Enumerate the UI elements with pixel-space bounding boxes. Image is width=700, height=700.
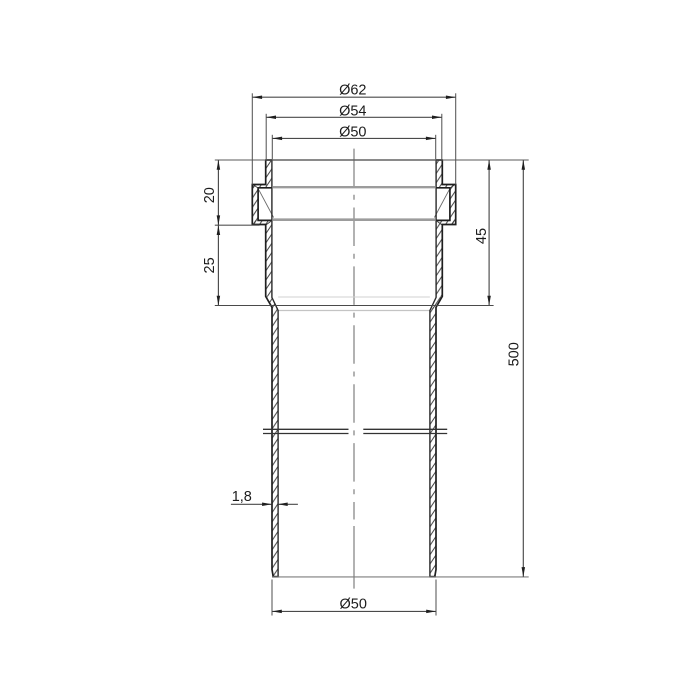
svg-text:Ø50: Ø50 (339, 125, 366, 141)
svg-text:45: 45 (474, 228, 490, 244)
svg-text:1,8: 1,8 (232, 489, 252, 505)
svg-text:Ø50: Ø50 (339, 596, 366, 612)
svg-text:Ø54: Ø54 (339, 104, 366, 120)
svg-text:25: 25 (202, 257, 218, 273)
svg-text:20: 20 (202, 187, 218, 203)
svg-text:500: 500 (507, 342, 523, 366)
svg-text:Ø62: Ø62 (339, 82, 366, 98)
